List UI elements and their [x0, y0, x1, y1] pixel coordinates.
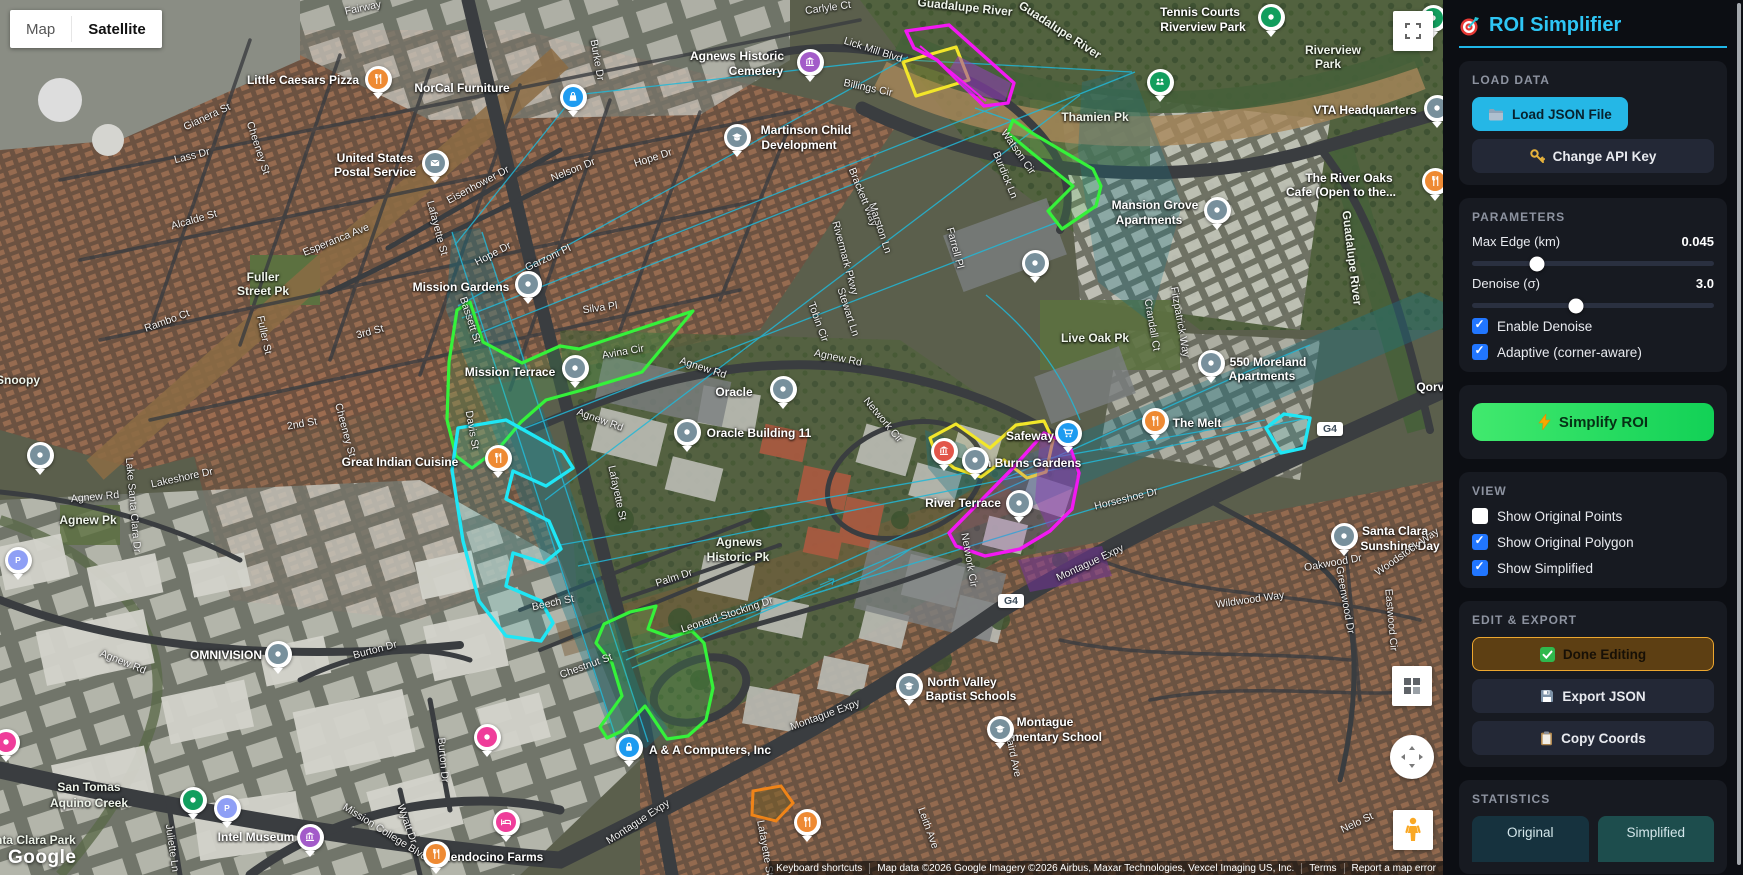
pan-arrows-icon: [1399, 744, 1425, 770]
denoise-slider-thumb[interactable]: [1569, 298, 1584, 313]
lock-marker[interactable]: [616, 734, 643, 761]
gray-marker[interactable]: [770, 376, 797, 403]
mus_p-marker[interactable]: [797, 49, 824, 76]
load-data-card: LOAD DATA Load JSON File Change API Key: [1459, 61, 1727, 185]
highway-badge: G4: [1317, 422, 1343, 436]
fullscreen-button[interactable]: [1393, 11, 1433, 51]
svg-text:P: P: [224, 803, 230, 813]
enable-denoise-checkbox[interactable]: [1472, 318, 1488, 334]
gray-marker[interactable]: [1331, 523, 1358, 550]
rest-marker[interactable]: [1142, 408, 1169, 435]
pink-marker[interactable]: [474, 724, 501, 751]
view-header: VIEW: [1472, 484, 1714, 498]
school-marker[interactable]: [987, 716, 1014, 743]
mus_r-marker[interactable]: [931, 438, 958, 465]
gray-marker[interactable]: [1424, 95, 1444, 122]
tilt-rotate-button[interactable]: [1392, 666, 1432, 706]
gray-marker[interactable]: [1006, 490, 1033, 517]
pegman-icon: [1405, 817, 1421, 843]
park_p-marker[interactable]: P: [5, 547, 32, 574]
rest-marker[interactable]: [365, 66, 392, 93]
denoise-label: Denoise (σ): [1472, 276, 1540, 291]
gray-marker[interactable]: [515, 271, 542, 298]
gray-marker[interactable]: [1198, 350, 1225, 377]
clipboard-icon: [1540, 731, 1553, 746]
sidebar-scrollbar[interactable]: [1737, 3, 1741, 865]
panel-title: ROI Simplifier: [1489, 14, 1621, 37]
show-original-points-label: Show Original Points: [1497, 509, 1622, 524]
title-underline: [1459, 46, 1727, 48]
rest-marker[interactable]: [794, 809, 821, 836]
stat-simplified-box: Simplified: [1598, 816, 1715, 862]
show-simplified-row[interactable]: Show Simplified: [1472, 560, 1714, 576]
gray-marker[interactable]: [1204, 197, 1231, 224]
pink-marker[interactable]: [0, 729, 20, 756]
denoise-row: Denoise (σ) 3.0: [1472, 276, 1714, 291]
show-original-polygon-row[interactable]: Show Original Polygon: [1472, 534, 1714, 550]
bag-marker[interactable]: [560, 84, 587, 111]
max-edge-slider[interactable]: [1472, 261, 1714, 266]
parameters-card: PARAMETERS Max Edge (km) 0.045 Denoise (…: [1459, 198, 1727, 372]
change-api-key-button[interactable]: Change API Key: [1472, 139, 1714, 173]
lightning-icon: [1538, 414, 1551, 430]
mail-marker[interactable]: [422, 150, 449, 177]
gray-marker[interactable]: [1022, 250, 1049, 277]
school-marker[interactable]: [724, 124, 751, 151]
copy-coords-button[interactable]: Copy Coords: [1472, 721, 1714, 755]
gray-marker[interactable]: [674, 419, 701, 446]
simplify-roi-button[interactable]: Simplify ROI: [1472, 403, 1714, 441]
green-check-icon: [1540, 647, 1555, 662]
google-logo: Google: [8, 847, 76, 869]
parameters-header: PARAMETERS: [1472, 210, 1714, 224]
enable-denoise-label: Enable Denoise: [1497, 319, 1592, 334]
satellite-imagery: [0, 0, 1443, 875]
max-edge-value: 0.045: [1681, 234, 1714, 249]
statistics-card: STATISTICS Original Simplified: [1459, 780, 1727, 874]
gray-marker[interactable]: [265, 641, 292, 668]
floppy-disk-icon: [1540, 689, 1554, 703]
park_p-marker[interactable]: P: [214, 795, 241, 822]
statistics-row: Original Simplified: [1472, 816, 1714, 862]
map-data-text: Map data ©2026 Google Imagery ©2026 Airb…: [869, 863, 1301, 874]
roi-simplifier-panel: ROI Simplifier LOAD DATA Load JSON File …: [1443, 0, 1743, 875]
terms-link[interactable]: Terms: [1301, 863, 1343, 874]
enable-denoise-checkbox-row[interactable]: Enable Denoise: [1472, 318, 1714, 334]
done-editing-button[interactable]: Done Editing: [1472, 637, 1714, 671]
grid-icon: [1403, 677, 1421, 695]
highway-badge: G4: [998, 594, 1024, 608]
panel-title-row: ROI Simplifier: [1459, 14, 1727, 37]
statistics-header: STATISTICS: [1472, 792, 1714, 806]
show-simplified-checkbox[interactable]: [1472, 560, 1488, 576]
rest-marker[interactable]: [423, 841, 450, 868]
fullscreen-icon: [1404, 22, 1422, 40]
gray-marker[interactable]: [27, 442, 54, 469]
cart-marker[interactable]: [1055, 420, 1082, 447]
show-simplified-label: Show Simplified: [1497, 561, 1593, 576]
svg-text:P: P: [15, 555, 21, 565]
hotel-marker[interactable]: [493, 809, 520, 836]
copy-coords-label: Copy Coords: [1561, 731, 1646, 746]
map-type-map-button[interactable]: Map: [10, 10, 71, 48]
max-edge-slider-thumb[interactable]: [1530, 256, 1545, 271]
folder-icon: [1488, 108, 1504, 121]
show-original-points-row[interactable]: Show Original Points: [1472, 508, 1714, 524]
denoise-value: 3.0: [1696, 276, 1714, 291]
app-window: Little Caesars PizzaNorCal FurnitureUnit…: [0, 0, 1743, 875]
map-attribution: Keyboard shortcuts Map data ©2026 Google…: [769, 861, 1443, 875]
show-original-polygon-checkbox[interactable]: [1472, 534, 1488, 550]
pegman-button[interactable]: [1393, 810, 1433, 850]
ppl-marker[interactable]: [1147, 69, 1174, 96]
denoise-slider[interactable]: [1472, 303, 1714, 308]
change-api-key-label: Change API Key: [1553, 149, 1657, 164]
school-marker[interactable]: [896, 673, 923, 700]
done-editing-label: Done Editing: [1563, 647, 1646, 662]
gray-marker[interactable]: [562, 355, 589, 382]
target-dart-icon: [1459, 15, 1481, 37]
load-data-header: LOAD DATA: [1472, 73, 1714, 87]
export-json-button[interactable]: Export JSON: [1472, 679, 1714, 713]
green-marker[interactable]: [180, 787, 207, 814]
view-card: VIEW Show Original Points Show Original …: [1459, 472, 1727, 588]
edit-export-header: EDIT & EXPORT: [1472, 613, 1714, 627]
adaptive-checkbox[interactable]: [1472, 344, 1488, 360]
stat-original-box: Original: [1472, 816, 1589, 862]
pan-control[interactable]: [1390, 735, 1434, 779]
show-original-polygon-label: Show Original Polygon: [1497, 535, 1634, 550]
max-edge-row: Max Edge (km) 0.045: [1472, 234, 1714, 249]
adaptive-checkbox-row[interactable]: Adaptive (corner-aware): [1472, 344, 1714, 360]
load-json-button[interactable]: Load JSON File: [1472, 97, 1628, 131]
simplify-card: Simplify ROI: [1459, 385, 1727, 459]
report-error-link[interactable]: Report a map error: [1344, 863, 1443, 874]
keyboard-shortcuts-link[interactable]: Keyboard shortcuts: [769, 863, 869, 874]
mus_p-marker[interactable]: [297, 824, 324, 851]
map-type-control: Map Satellite: [10, 10, 162, 48]
show-original-points-checkbox[interactable]: [1472, 508, 1488, 524]
gray-marker[interactable]: [962, 447, 989, 474]
adaptive-label: Adaptive (corner-aware): [1497, 345, 1642, 360]
max-edge-label: Max Edge (km): [1472, 234, 1560, 249]
rest-marker[interactable]: [1422, 168, 1444, 195]
map-type-satellite-button[interactable]: Satellite: [72, 10, 162, 48]
rest-marker[interactable]: [485, 445, 512, 472]
map-canvas[interactable]: Little Caesars PizzaNorCal FurnitureUnit…: [0, 0, 1443, 875]
key-icon: [1530, 149, 1545, 164]
tennis-marker[interactable]: [1258, 4, 1285, 31]
load-json-label: Load JSON File: [1512, 107, 1612, 122]
simplify-roi-label: Simplify ROI: [1559, 414, 1648, 431]
edit-export-card: EDIT & EXPORT Done Editing Export JSON C…: [1459, 601, 1727, 767]
export-json-label: Export JSON: [1562, 689, 1645, 704]
